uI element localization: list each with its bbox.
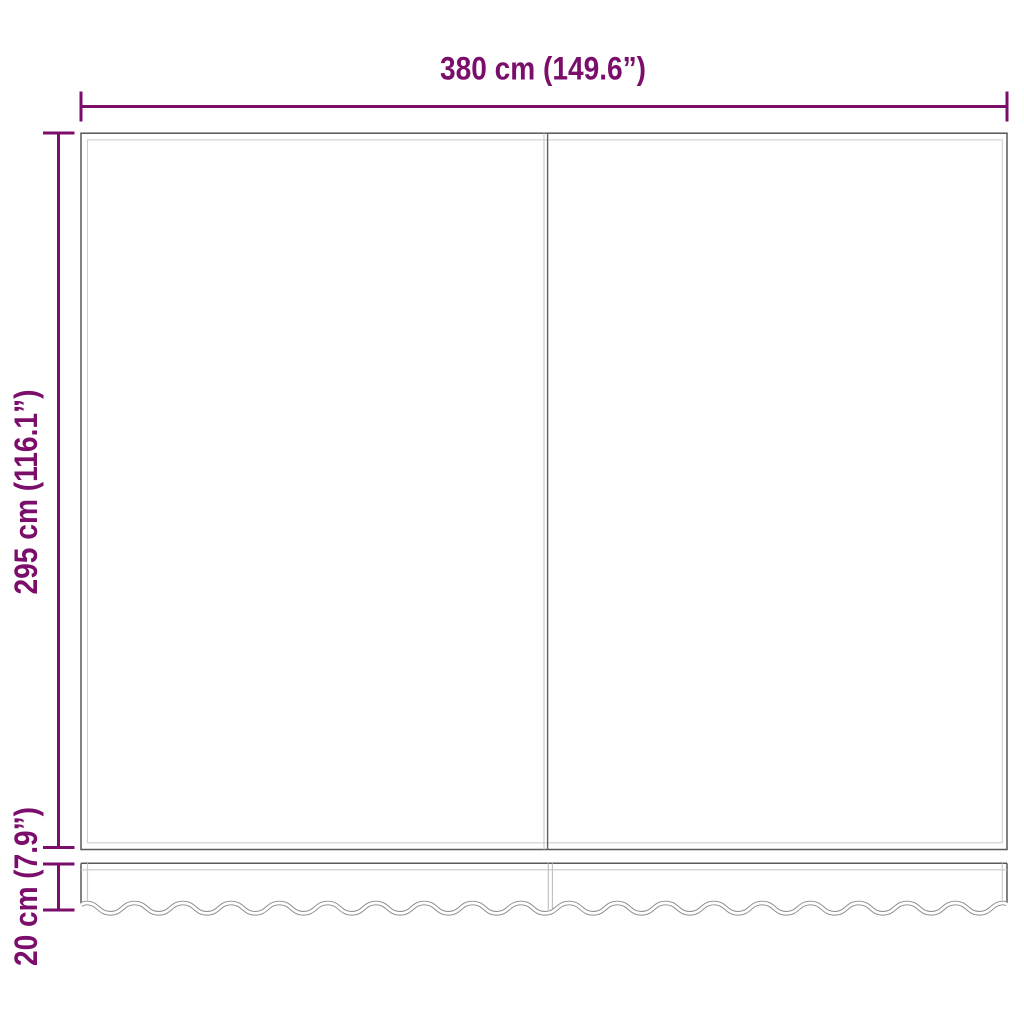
svg-text:295 cm (116.1”): 295 cm (116.1”) [8, 390, 44, 595]
svg-text:20 cm (7.9”): 20 cm (7.9”) [8, 807, 44, 966]
svg-text:380 cm (149.6”): 380 cm (149.6”) [440, 51, 646, 87]
